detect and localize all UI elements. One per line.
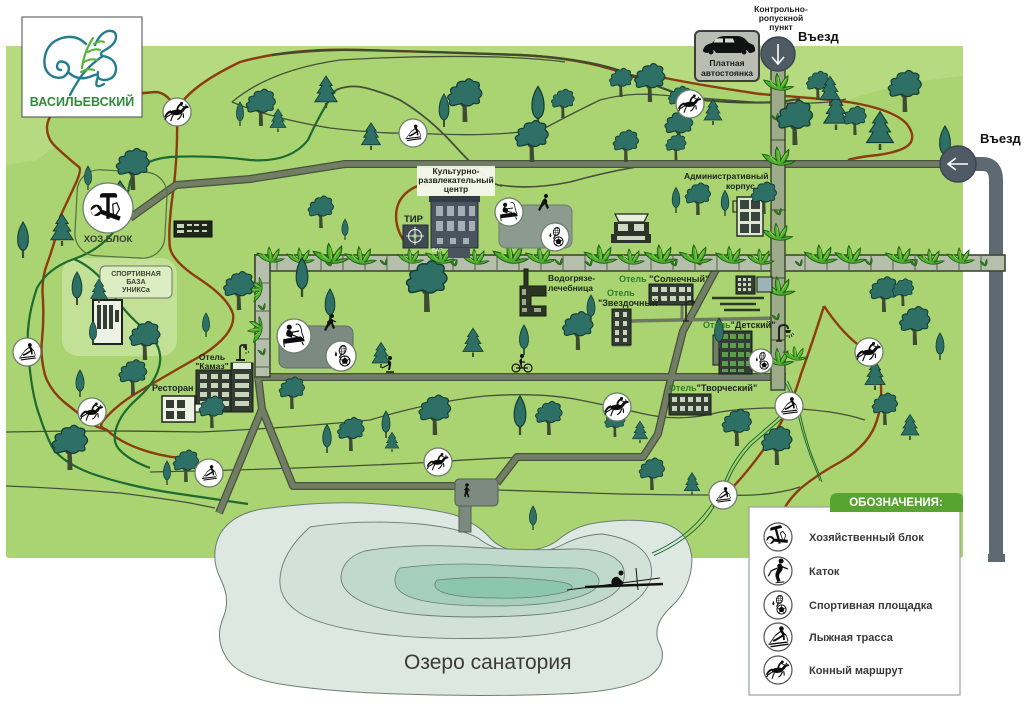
svg-text:"Камаз": "Камаз" [195,361,228,371]
svg-text:Спортивная площадка: Спортивная площадка [809,600,933,612]
svg-text:центр: центр [444,184,468,194]
svg-text:Въезд: Въезд [980,131,1022,146]
svg-text:Хозяйственный блок: Хозяйственный блок [809,532,924,544]
svg-text:Въезд: Въезд [798,29,840,44]
svg-text:автостоянка: автостоянка [701,68,753,78]
svg-text:лечебница: лечебница [548,283,593,293]
svg-text:ТИР: ТИР [404,214,424,225]
svg-text:БАЗА: БАЗА [126,279,145,286]
svg-text:Платная: Платная [709,58,744,68]
svg-text:ХОЗ.БЛОК: ХОЗ.БЛОК [84,234,133,245]
svg-text:ВАСИЛЬЕВСКИЙ: ВАСИЛЬЕВСКИЙ [30,94,134,109]
svg-text:Отель: Отель [607,288,635,298]
svg-text:Отель"Творческий": Отель"Творческий" [669,383,757,393]
svg-text:корпус: корпус [726,181,755,191]
svg-text:Водогрязе-: Водогрязе- [548,273,595,283]
svg-text:Озеро санатория: Озеро санатория [404,651,571,674]
svg-text:Конный маршрут: Конный маршрут [809,665,904,677]
svg-text:Ресторан: Ресторан [152,383,193,393]
svg-text:Лыжная трасса: Лыжная трасса [809,632,894,644]
svg-text:Отель "Солнечный": Отель "Солнечный" [619,274,709,284]
svg-text:СПОРТИВНАЯ: СПОРТИВНАЯ [111,271,161,278]
svg-text:"Звездочный": "Звездочный" [598,298,662,308]
svg-text:Отель"Детский": Отель"Детский" [703,320,775,330]
svg-text:БАР: БАР [432,248,443,254]
svg-text:Административный: Административный [684,171,768,181]
svg-text:ОБОЗНАЧЕНИЯ:: ОБОЗНАЧЕНИЯ: [849,497,943,509]
svg-text:УНИКСа: УНИКСа [122,287,150,294]
svg-text:Каток: Каток [809,566,840,578]
svg-text:пункт: пункт [769,22,792,32]
